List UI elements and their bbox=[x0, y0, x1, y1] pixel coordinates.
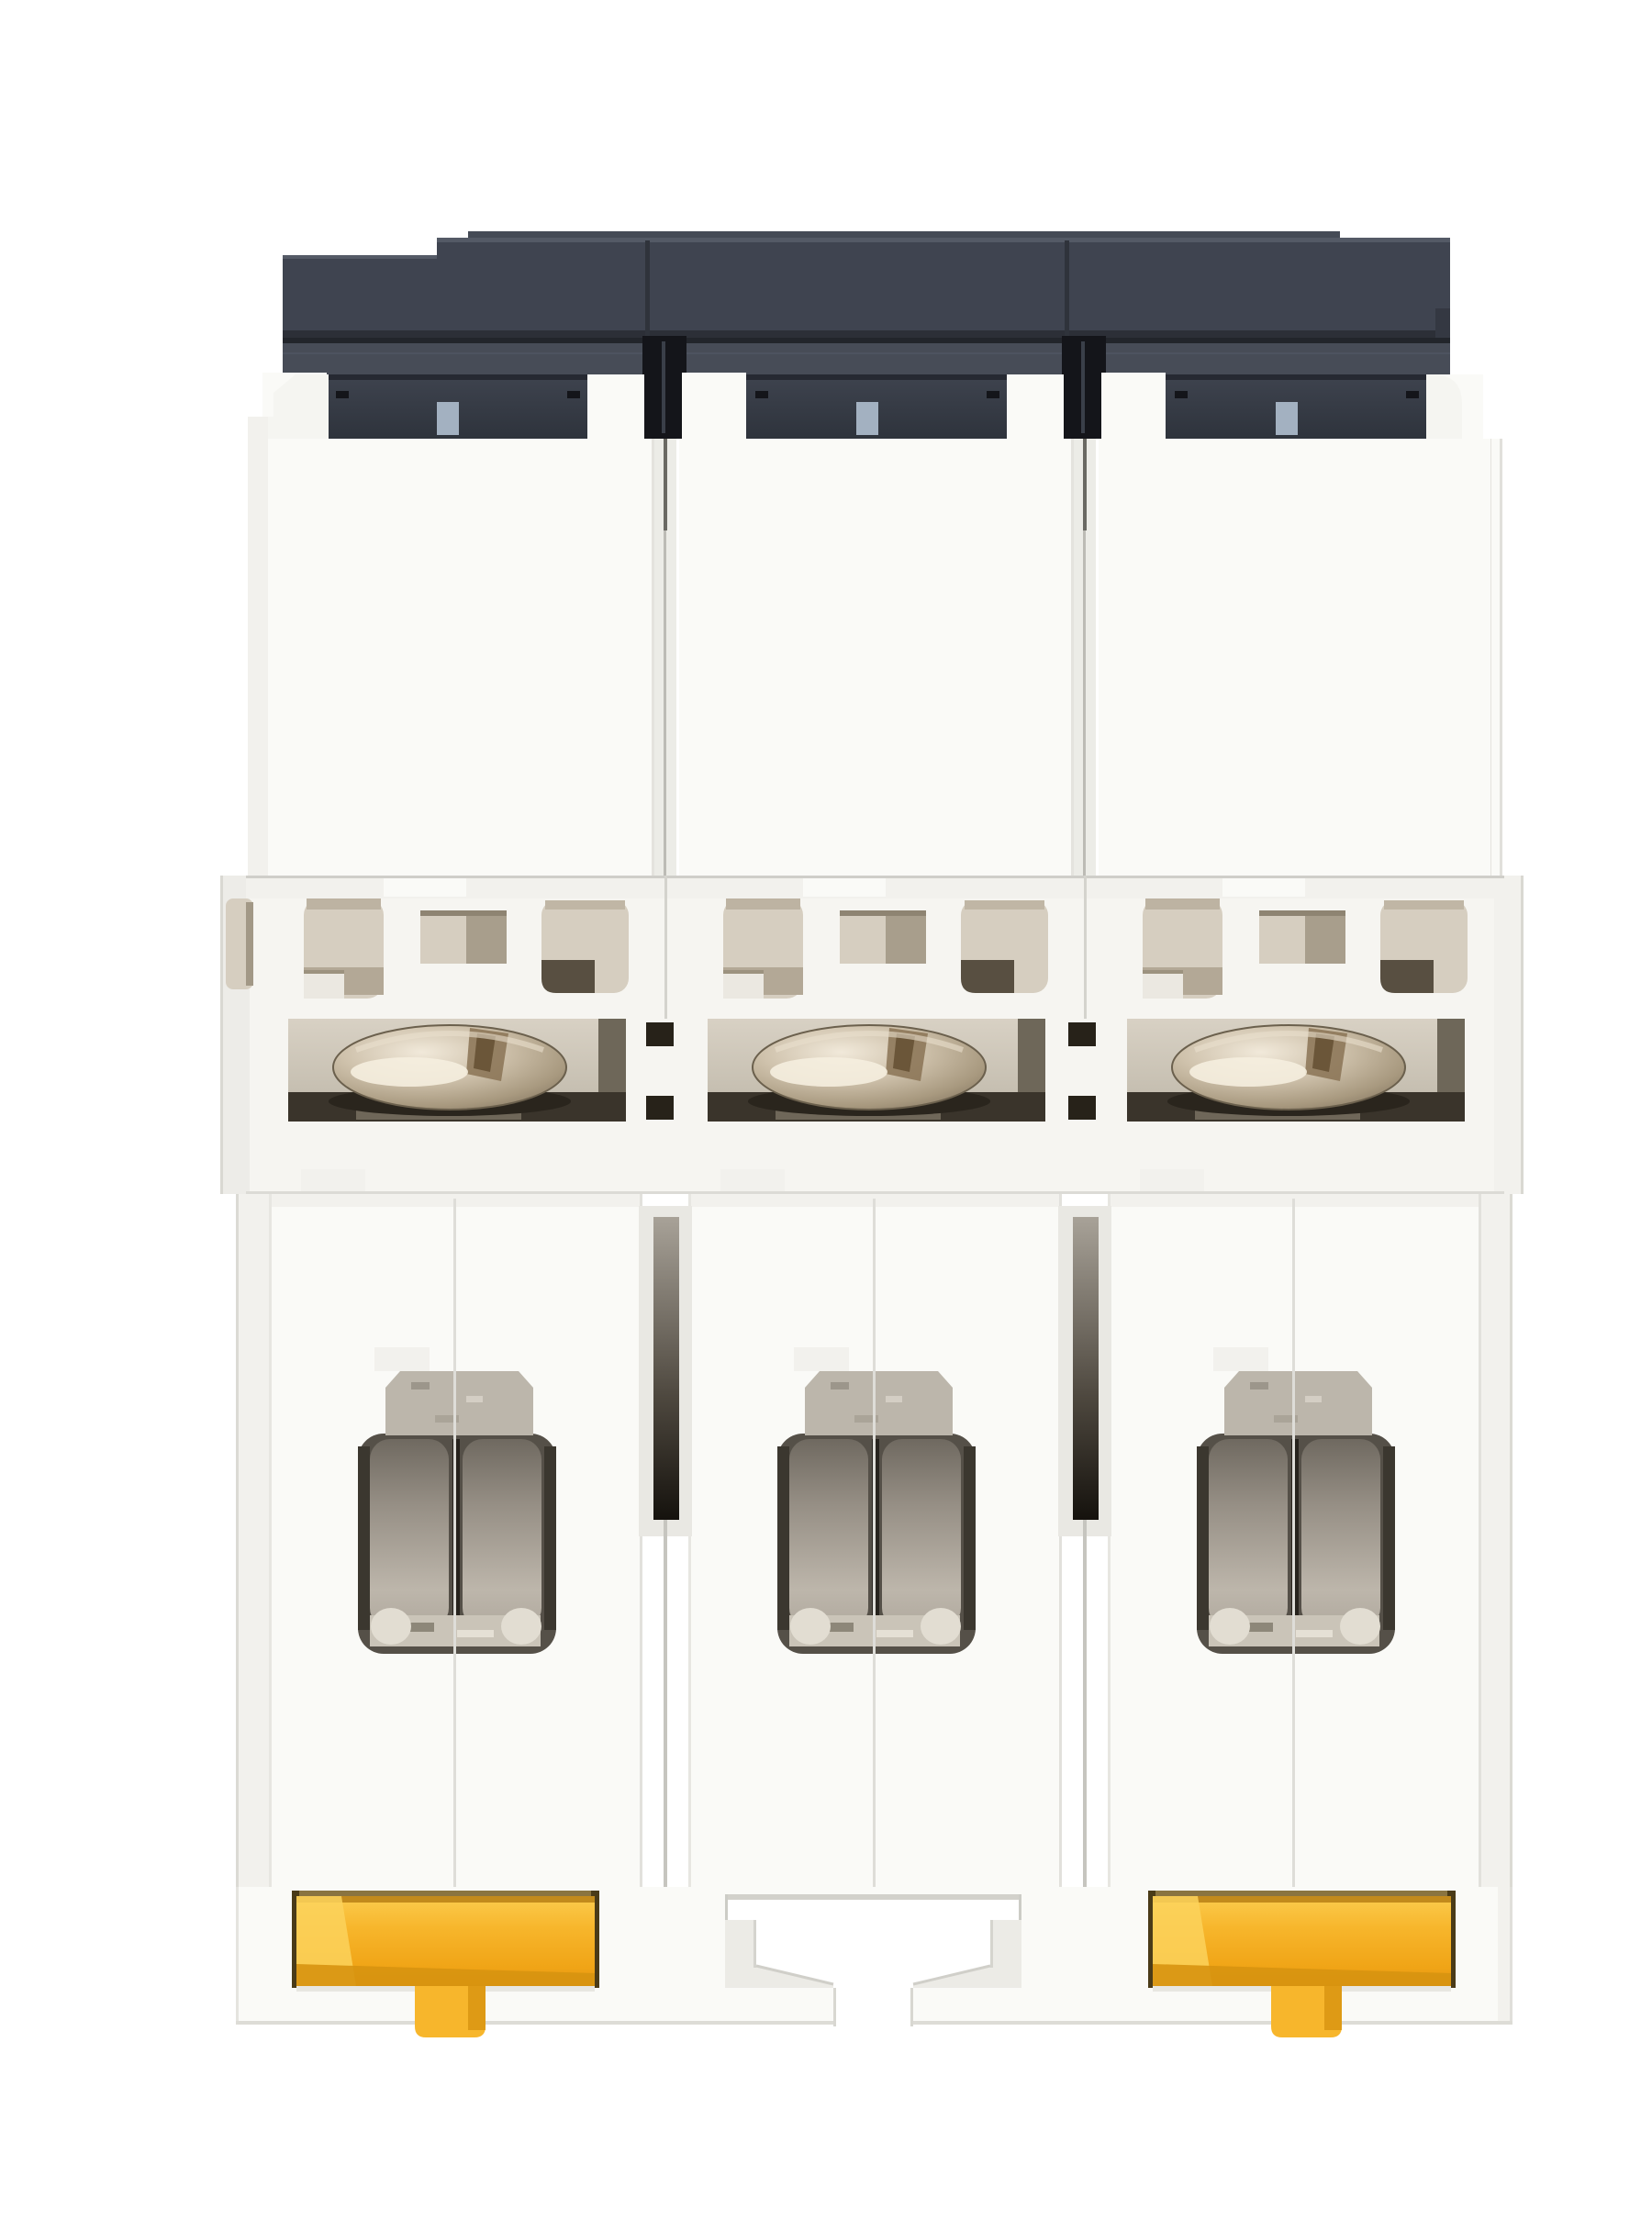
pole-2-upper bbox=[676, 373, 1074, 876]
mid-seam-right bbox=[1084, 876, 1087, 1019]
pole-1-upper bbox=[257, 373, 654, 876]
terminal-gap-hairline-left bbox=[664, 1520, 667, 1894]
terminal-gap-hairline-right bbox=[1083, 1520, 1087, 1894]
terminal-right-margin bbox=[1481, 1194, 1512, 1892]
mid-band-right-flange bbox=[1494, 876, 1524, 1194]
cap-gap-slot-left-split bbox=[662, 341, 665, 433]
mid-band-right-edge bbox=[1521, 876, 1524, 1194]
cap-groove bbox=[283, 338, 1450, 343]
base-bottom-edge-left bbox=[236, 2021, 833, 2025]
cap-slab-bottom-shade bbox=[283, 330, 1450, 338]
notch-stem-left-line bbox=[833, 1988, 836, 2026]
cap-second-slab bbox=[283, 343, 1450, 378]
cap-top-slab bbox=[283, 238, 1450, 338]
clip-pull-tab-shade bbox=[1324, 1986, 1342, 2030]
pole-1-center-seam bbox=[453, 1199, 456, 1892]
mid-seam-left bbox=[664, 876, 667, 1019]
terminal-gap-channel-left bbox=[653, 1217, 679, 1520]
boundary-hole-right-lower bbox=[1068, 1096, 1096, 1120]
notch-ledge-right-edge bbox=[990, 1920, 993, 1968]
pole-seam-right bbox=[1083, 530, 1086, 876]
cap-step-highlight bbox=[283, 255, 437, 259]
pole-2-center-seam bbox=[873, 1199, 876, 1892]
mid-band-left-edge bbox=[220, 876, 223, 1194]
cap-second-slab-line bbox=[283, 352, 1450, 354]
cap-end-notch bbox=[1435, 308, 1450, 338]
notch-top-shadow bbox=[725, 1894, 1021, 1900]
notch-stem-right-line bbox=[910, 1988, 913, 2026]
boundary-hole-left-upper bbox=[646, 1022, 674, 1046]
terminal-gap-channel-right bbox=[1073, 1217, 1099, 1520]
pole-3-upper bbox=[1096, 373, 1493, 876]
mid-band bbox=[220, 876, 1524, 1194]
boundary-hole-left-lower bbox=[646, 1096, 674, 1120]
notch-ledge-left-edge bbox=[753, 1920, 756, 1968]
base-bottom-edge-right bbox=[913, 2021, 1512, 2025]
cap-second-slab-shade bbox=[283, 374, 1450, 380]
breaker-bottom-view bbox=[37, 15, 1652, 2217]
cap-top-highlight bbox=[437, 238, 1450, 242]
left-side-sliver bbox=[248, 417, 268, 876]
terminal-right-outer-edge bbox=[1510, 1194, 1512, 1892]
base-section bbox=[236, 1887, 1512, 2037]
pole-seam-left-dark bbox=[664, 439, 667, 530]
cap-gap-slot-right-split bbox=[1081, 341, 1085, 433]
base-right-edge bbox=[1510, 1887, 1512, 2025]
notch-stem bbox=[833, 1988, 913, 2026]
boundary-hole-right-upper bbox=[1068, 1022, 1096, 1046]
clip-pull-tab-shade bbox=[468, 1986, 486, 2030]
pole-seam-right-dark bbox=[1083, 439, 1087, 530]
pole-seam-left bbox=[664, 530, 666, 876]
upper-pole-faces bbox=[248, 373, 1502, 876]
right-side-sliver-edge bbox=[1500, 439, 1502, 876]
left-flange-vent-shade bbox=[246, 902, 253, 986]
terminal-section bbox=[236, 1194, 1512, 1894]
terminal-left-outer-edge bbox=[236, 1194, 239, 1892]
product-photo: Bottom view of a white 3-pole miniature … bbox=[37, 15, 1652, 2217]
terminal-left-margin bbox=[236, 1194, 269, 1892]
base-left-edge bbox=[236, 1887, 239, 2025]
pole-3-center-seam bbox=[1292, 1199, 1295, 1892]
